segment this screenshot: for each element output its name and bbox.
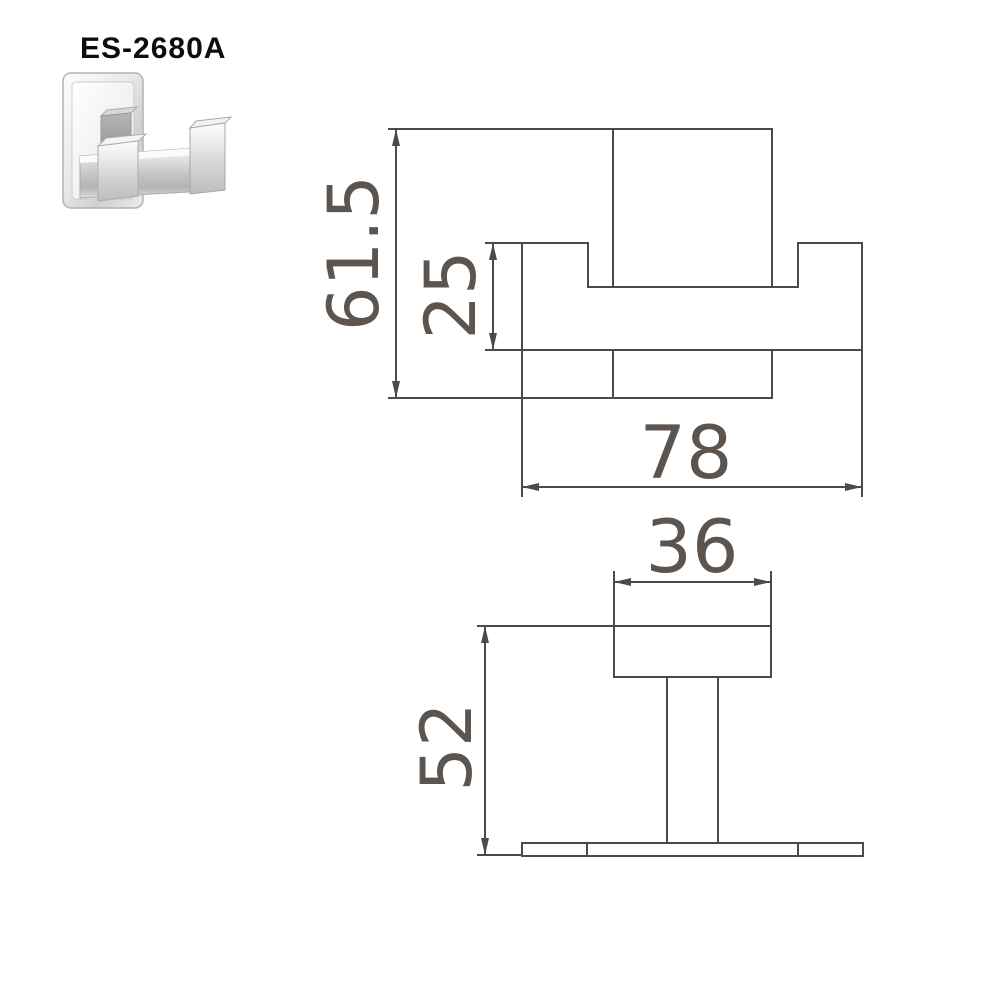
- spec-sheet-page: ES-2680A: [0, 0, 1000, 1000]
- side-view-arm-stem: [667, 677, 718, 843]
- arrow-icon: [481, 838, 489, 855]
- dim-tip-width-label: 36: [646, 505, 739, 590]
- arrow-icon: [392, 381, 400, 398]
- arrow-icon: [614, 578, 631, 586]
- arrow-icon: [754, 578, 771, 586]
- dim-total-height-label: 61.5: [313, 175, 395, 331]
- dim-projection-label: 52: [406, 702, 488, 791]
- arrow-icon: [522, 483, 539, 491]
- dim-arm-height-label: 25: [410, 250, 492, 339]
- dim-total-width-label: 78: [640, 411, 733, 496]
- arrow-icon: [392, 129, 400, 146]
- front-view-arm-outline: [522, 243, 862, 350]
- side-view-arrowheads: [481, 578, 771, 855]
- side-view-drawing: [478, 572, 863, 856]
- arrow-icon: [845, 483, 862, 491]
- dimension-drawings: 61.5 25 78: [0, 0, 1000, 1000]
- front-view-wall-plate: [613, 129, 772, 398]
- arrow-icon: [481, 626, 489, 643]
- side-view-wall-plate: [522, 843, 863, 856]
